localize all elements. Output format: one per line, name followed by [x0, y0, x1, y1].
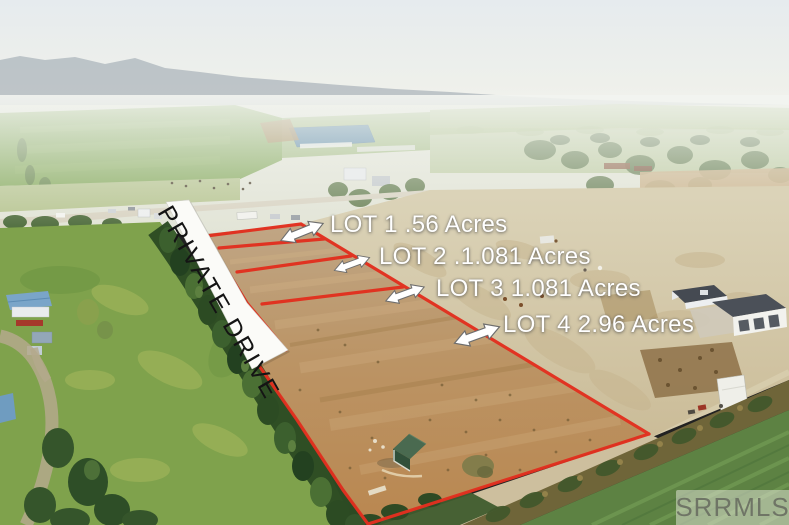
farm-equipment	[16, 320, 43, 326]
horse	[519, 303, 523, 307]
lot-4-label: LOT 4 2.96 Acres	[503, 312, 694, 338]
bush-shadow	[477, 466, 493, 478]
mls-watermark: SRRMLS	[676, 490, 789, 525]
lot-2-label: LOT 2 .1.081 Acres	[379, 244, 591, 270]
white-horse	[598, 266, 602, 270]
mls-watermark-text: SRRMLS	[675, 492, 789, 523]
aerial-photo: LOT 1 .56 Acres LOT 2 .1.081 Acres LOT 3…	[0, 0, 789, 525]
lot-3-label: LOT 3 1.081 Acres	[436, 276, 641, 302]
lot-1-label: LOT 1 .56 Acres	[330, 212, 507, 238]
